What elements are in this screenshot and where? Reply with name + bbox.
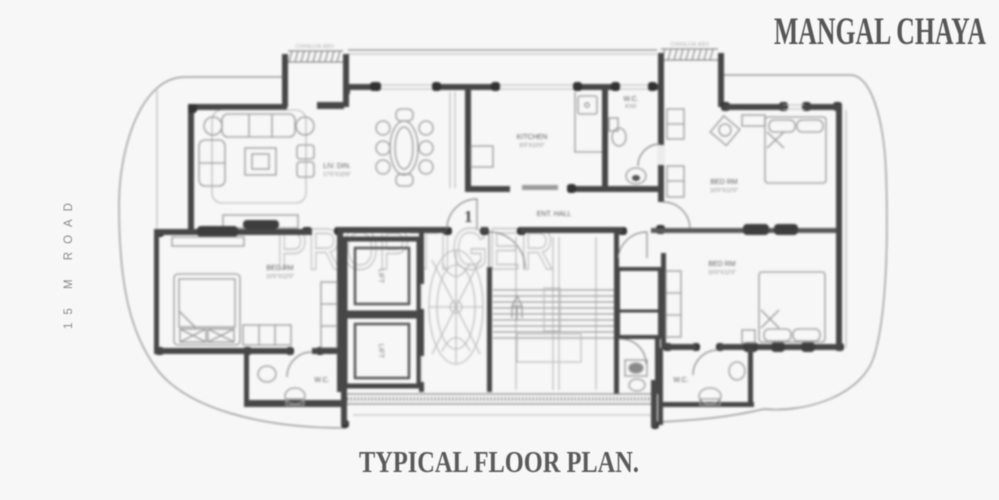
- svg-text:ENT. HALL: ENT. HALL: [537, 211, 572, 218]
- svg-text:BED RM: BED RM: [710, 179, 737, 186]
- svg-text:W.C.: W.C.: [314, 377, 329, 384]
- svg-text:10'0"X12'0": 10'0"X12'0": [266, 274, 294, 280]
- svg-text:10'0"X12'0": 10'0"X12'0": [710, 188, 738, 194]
- svg-text:15 M ROAD: 15 M ROAD: [63, 195, 75, 329]
- svg-text:10'0"X12'0": 10'0"X12'0": [708, 270, 736, 276]
- svg-text:BED RM: BED RM: [708, 261, 735, 268]
- svg-text:W.C.: W.C.: [673, 377, 688, 384]
- svg-text:KITCHEN: KITCHEN: [517, 134, 548, 141]
- svg-text:1: 1: [464, 207, 473, 226]
- svg-text:CHHAJJA ABV: CHHAJJA ABV: [671, 42, 710, 48]
- svg-text:MANGAL CHAYA: MANGAL CHAYA: [774, 10, 986, 53]
- svg-text:PROPTIGER: PROPTIGER: [276, 217, 554, 282]
- svg-text:8'0"X10'0": 8'0"X10'0": [520, 143, 545, 149]
- svg-text:CHHAJJA ABV: CHHAJJA ABV: [296, 44, 335, 50]
- svg-text:LIFT: LIFT: [377, 269, 384, 284]
- svg-text:4'X6': 4'X6': [625, 104, 637, 110]
- svg-text:LIFT: LIFT: [377, 344, 384, 359]
- svg-text:TYPICAL FLOOR PLAN.: TYPICAL FLOOR PLAN.: [359, 444, 639, 479]
- svg-text:W.C.: W.C.: [623, 96, 638, 103]
- svg-text:BED RM: BED RM: [266, 265, 293, 272]
- svg-text:LIV. DIN.: LIV. DIN.: [323, 163, 351, 170]
- svg-text:17'0"X10'6": 17'0"X10'6": [323, 172, 351, 178]
